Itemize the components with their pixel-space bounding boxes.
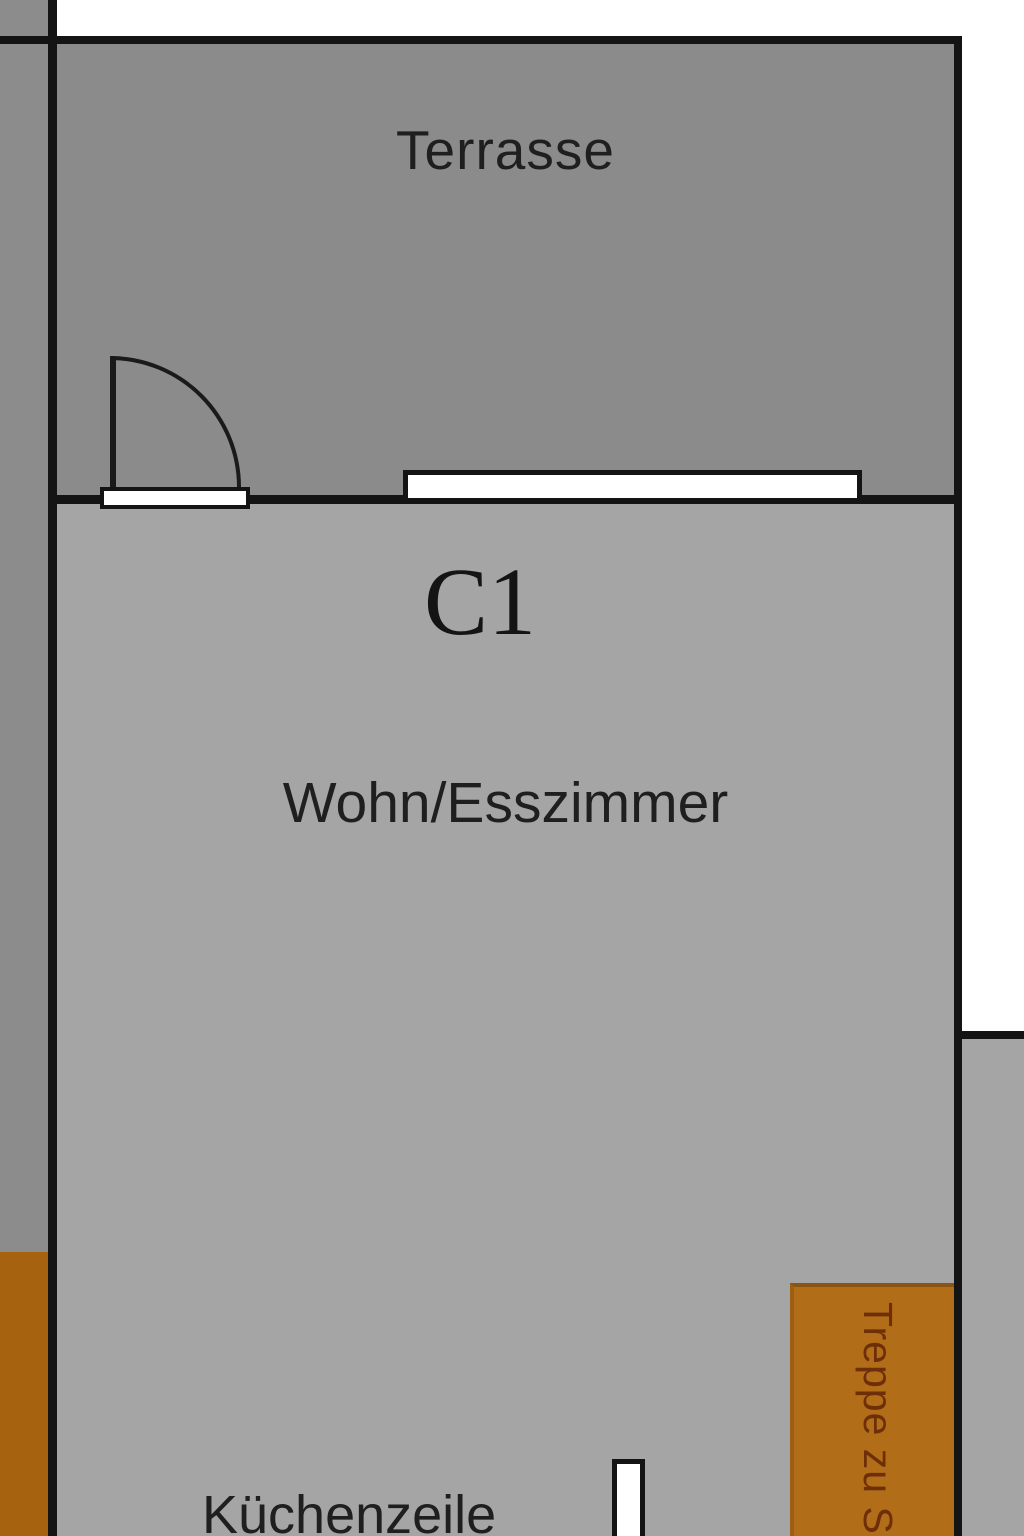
living-dining-label: Wohn/Esszimmer [57,770,954,836]
unit-label: C1 [424,546,536,657]
wall-right-step [954,1031,1024,1039]
wall-right [954,36,962,1536]
left-corridor-area [0,0,48,1252]
kitchenette-label: Küchenzeile [202,1484,496,1536]
wall-left [48,0,57,1536]
terrace-label: Terrasse [57,118,954,182]
left-stairs-area [0,1252,48,1536]
window-icon [403,470,862,503]
adjacent-area [962,1039,1024,1536]
wall-top [0,36,962,44]
door-threshold-icon [100,487,250,509]
stairs-label: Treppe zu S [854,1302,901,1535]
floorplan-canvas: Terrasse C1 Wohn/Esszimmer Küchenzeile T… [0,0,1024,1536]
kitchen-partition-icon [612,1459,645,1536]
